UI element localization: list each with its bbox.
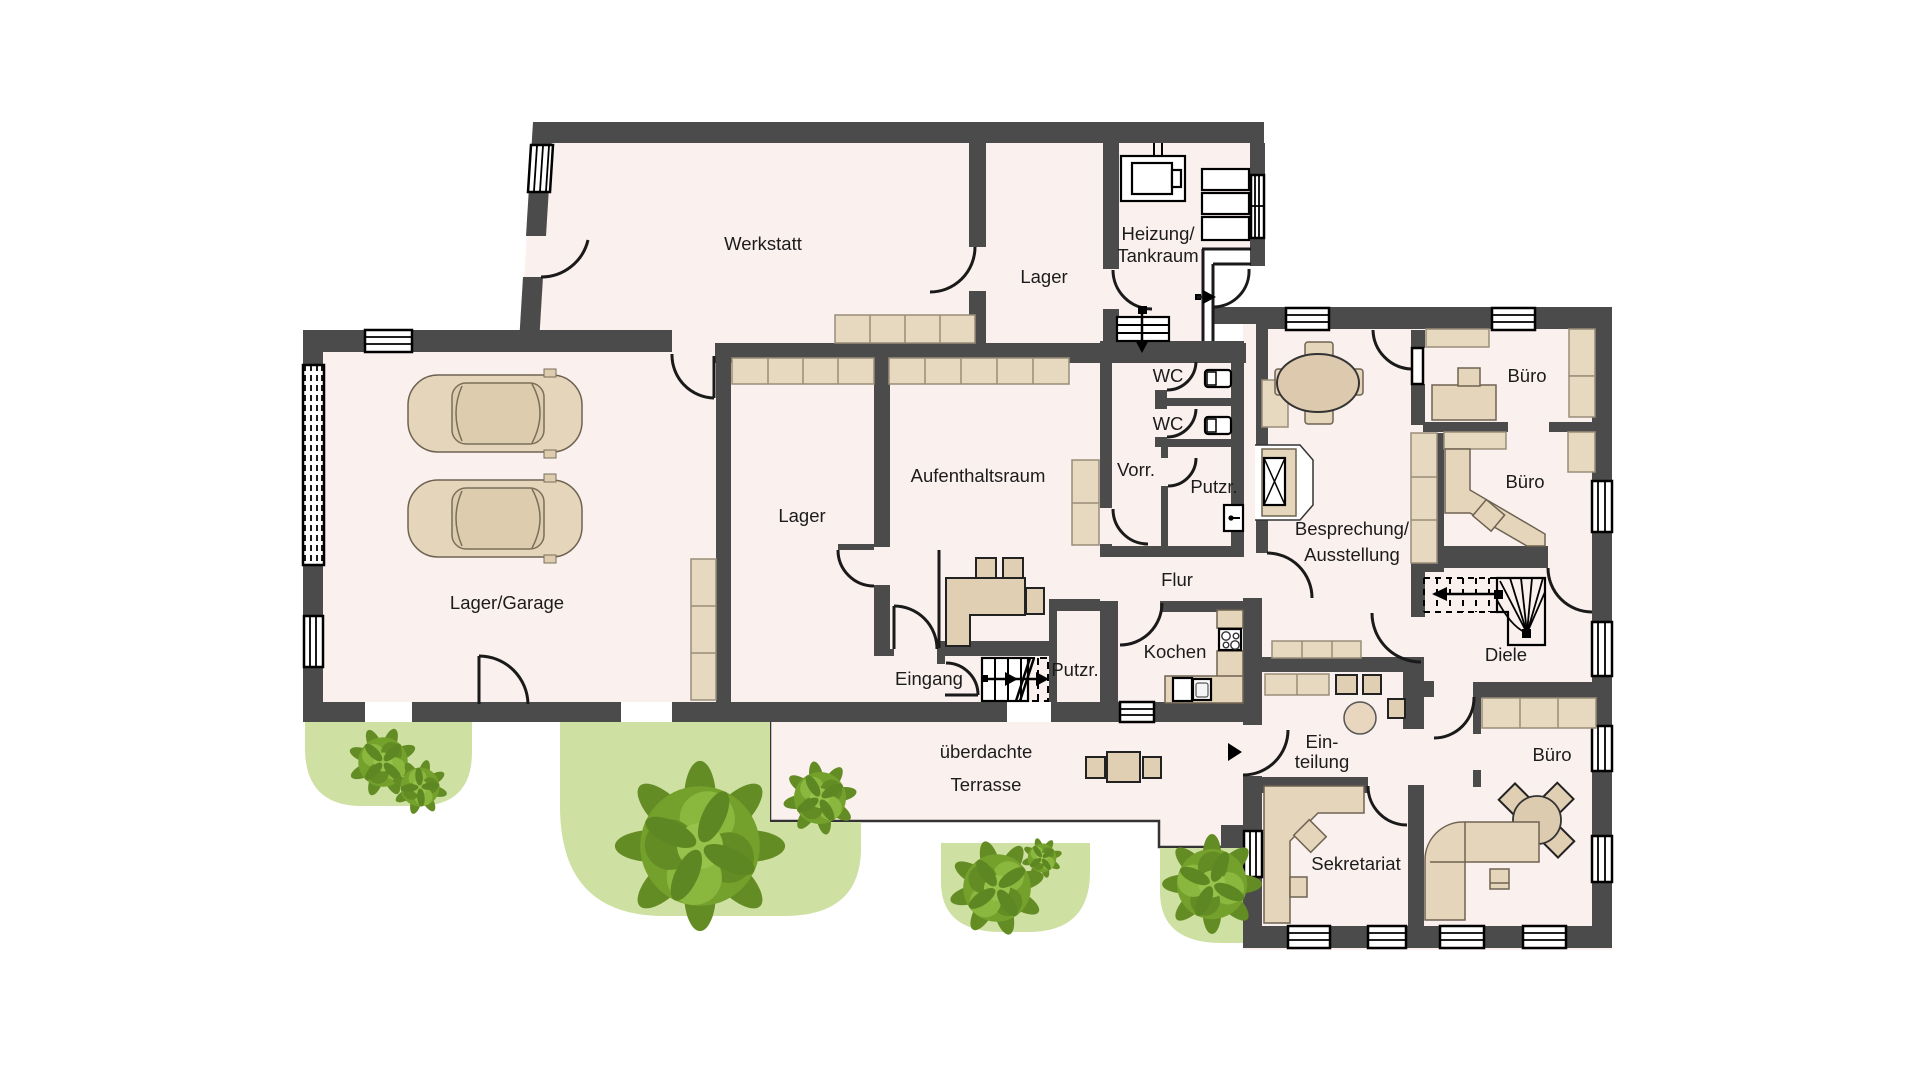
svg-text:Putzr.: Putzr. [1051,659,1098,680]
svg-text:Lager: Lager [1020,266,1067,287]
svg-text:Sekretariat: Sekretariat [1311,853,1400,874]
svg-text:WC: WC [1153,365,1184,386]
svg-text:Putzr.: Putzr. [1190,476,1237,497]
svg-text:Werkstatt: Werkstatt [724,233,802,254]
svg-text:Vorr.: Vorr. [1117,459,1155,480]
svg-text:Büro: Büro [1532,744,1571,765]
svg-text:Terrasse: Terrasse [951,774,1022,795]
svg-text:Kochen: Kochen [1144,641,1207,662]
svg-text:Besprechung/: Besprechung/ [1295,518,1410,539]
svg-text:WC: WC [1153,413,1184,434]
svg-text:Büro: Büro [1505,471,1544,492]
svg-text:Lager/Garage: Lager/Garage [450,592,564,613]
svg-text:Diele: Diele [1485,644,1527,665]
svg-text:Heizung/: Heizung/ [1121,223,1195,244]
svg-text:überdachte: überdachte [940,741,1033,762]
svg-text:Ausstellung: Ausstellung [1304,544,1400,565]
svg-text:Aufenthaltsraum: Aufenthaltsraum [911,465,1046,486]
svg-text:Tankraum: Tankraum [1117,245,1198,266]
svg-text:teilung: teilung [1295,751,1350,772]
svg-text:Büro: Büro [1507,365,1546,386]
svg-text:Eingang: Eingang [895,668,963,689]
svg-text:Flur: Flur [1161,569,1193,590]
svg-text:Lager: Lager [778,505,825,526]
svg-text:Ein-: Ein- [1306,731,1339,752]
